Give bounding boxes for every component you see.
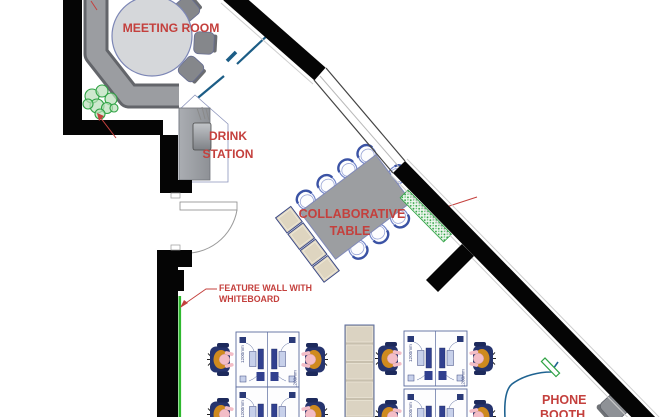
desk-cluster-a: 1200mm 1200mm 1200mm 1200mm: [207, 332, 328, 417]
storage-lockers: [345, 325, 374, 417]
meeting-room-label: MEETING ROOM: [123, 21, 220, 35]
phone-booth-label-line2: BOOTH: [540, 408, 585, 417]
desk-cluster-b: 1200mm 1200mm 1200mm 1200mm: [375, 331, 496, 417]
phone-booth-door: [541, 358, 559, 377]
desk-dimension: 1200mm: [293, 370, 298, 388]
feature-wall-label-line2: WHITEBOARD: [219, 294, 280, 304]
feature-wall-label-line1: FEATURE WALL WITH: [219, 283, 312, 293]
drink-station-label-line2: STATION: [203, 147, 254, 161]
whiteboard-strip: [179, 296, 182, 417]
desk-dimension: 1200mm: [408, 344, 413, 362]
floor-plan-drawing: 1200mm 1200mm 1200mm 1200mm 1200mm 1200m…: [0, 0, 660, 417]
meeting-room-table: [112, 0, 192, 76]
desk-dimension: 1200mm: [408, 402, 413, 417]
desk-dimension: 1200mm: [461, 369, 466, 387]
door-jamb: [171, 245, 180, 250]
collaborative-table-label-line1: COLLABORATIVE: [299, 207, 406, 221]
floor-plan: 1200mm 1200mm 1200mm 1200mm 1200mm 1200m…: [0, 0, 660, 417]
desk-dimension: 1200mm: [240, 345, 245, 363]
drink-station-label-line1: DRINK: [209, 129, 247, 143]
collaborative-table-label-line2: TABLE: [330, 224, 371, 238]
door-leaf: [180, 202, 237, 210]
door-jamb: [171, 193, 180, 198]
desk-dimension: 1200mm: [240, 400, 245, 417]
window-strip: [314, 68, 405, 173]
door-swing-arc: [181, 210, 237, 253]
phone-booth-label-line1: PHONE: [542, 393, 586, 407]
entry-door: [180, 202, 237, 253]
